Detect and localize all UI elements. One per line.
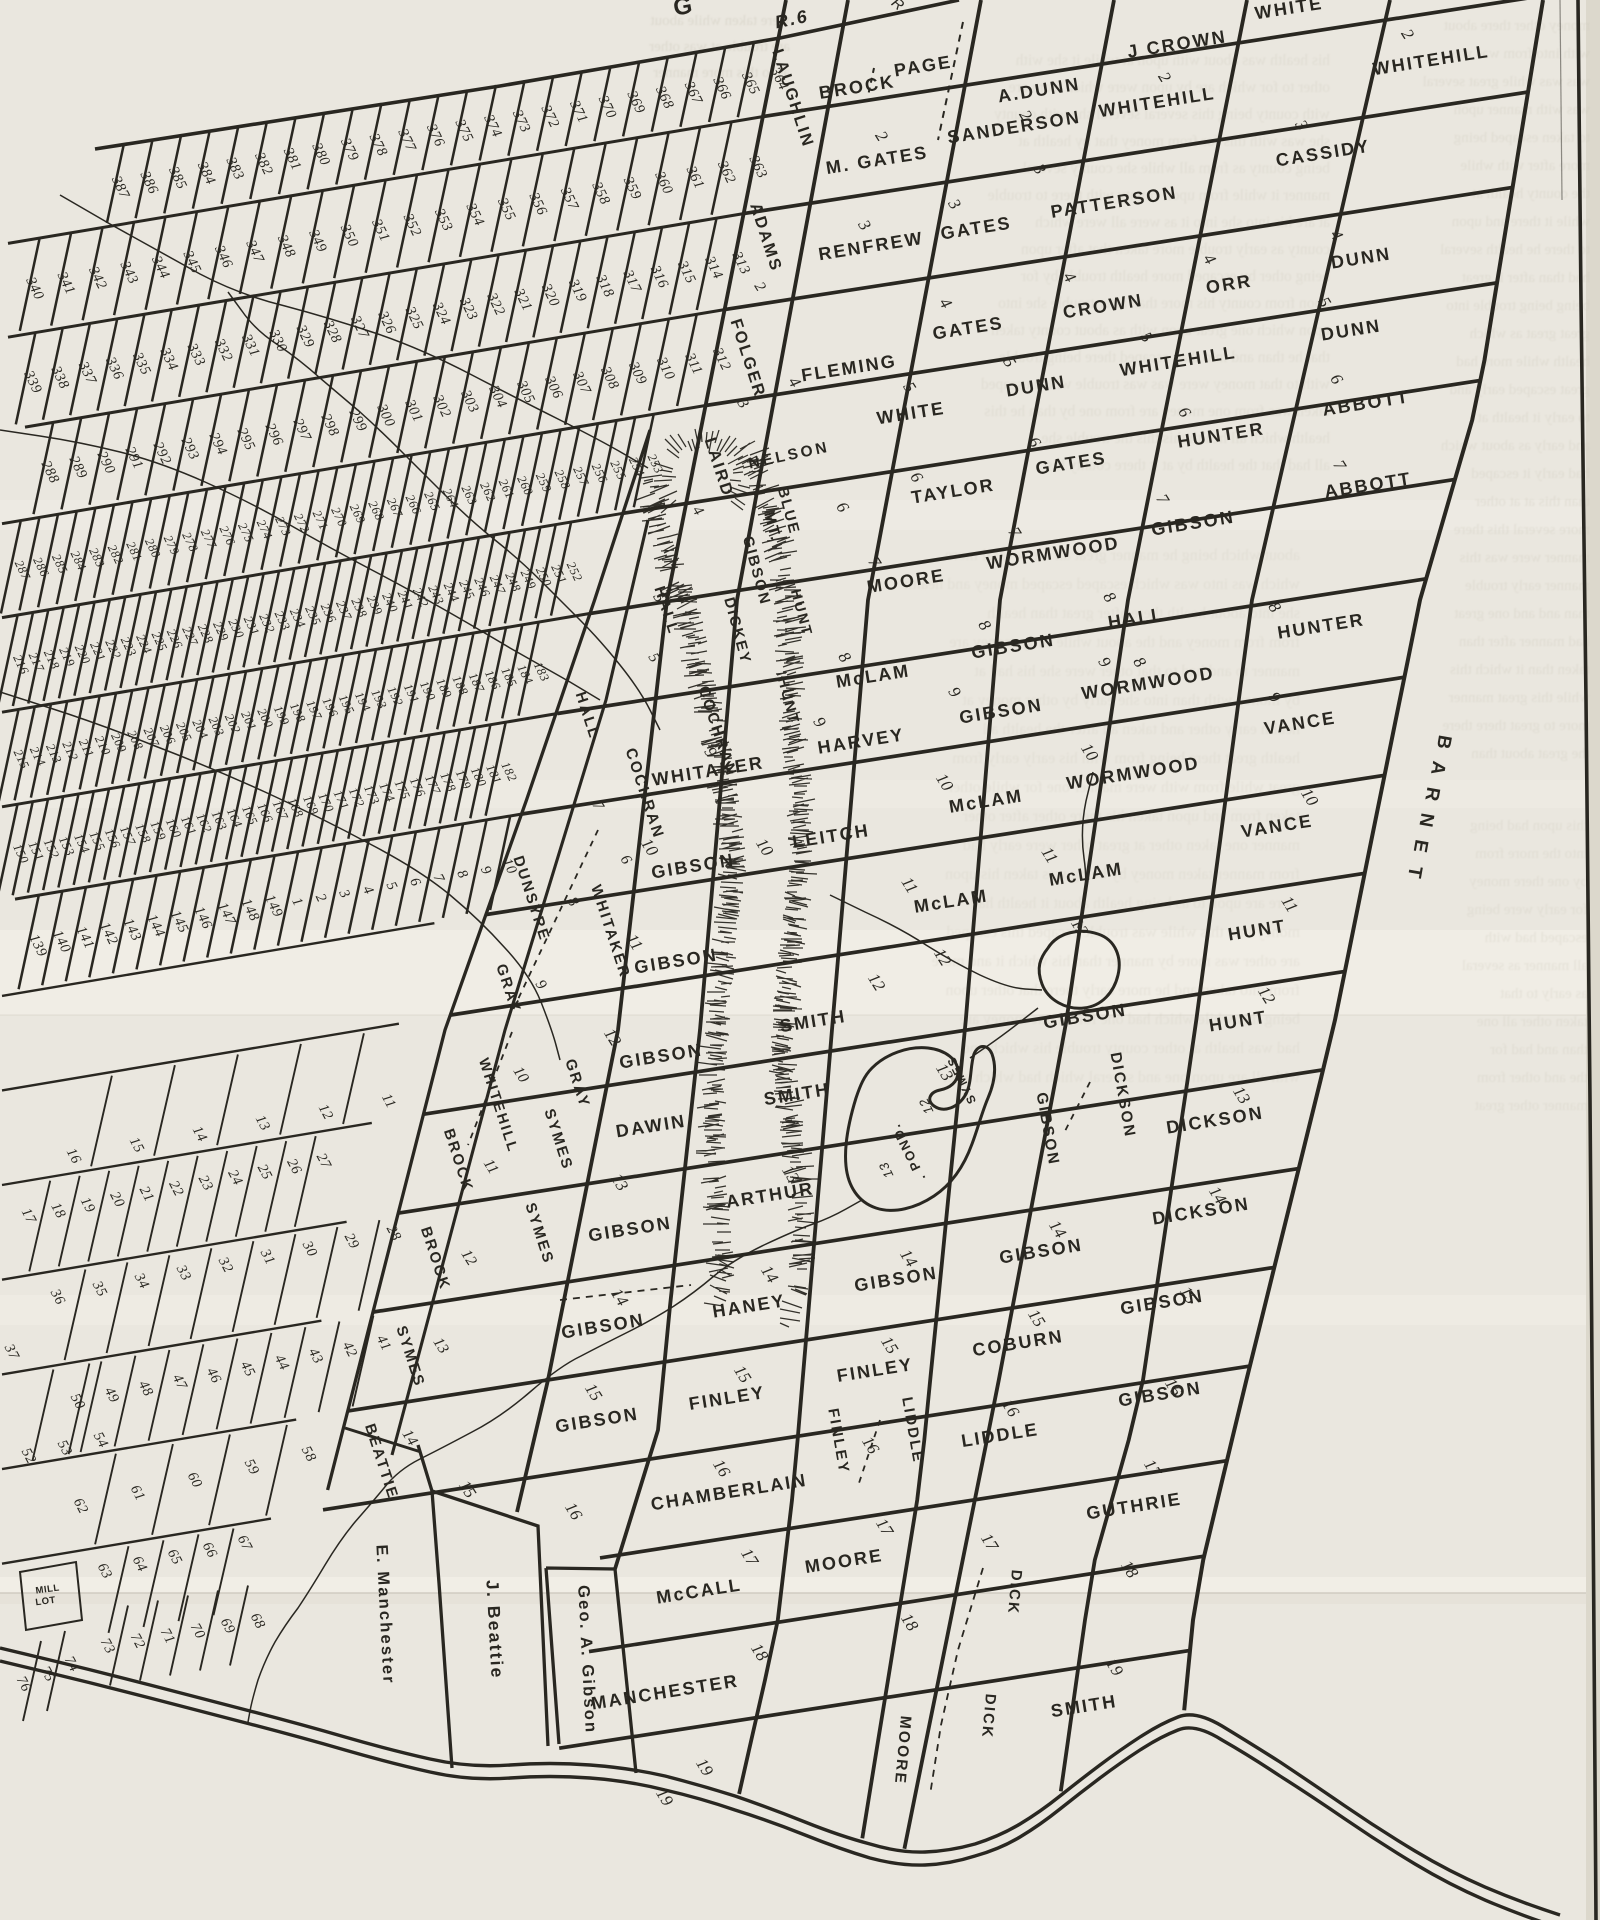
svg-text:this upon had being: this upon had being [1470,818,1588,834]
svg-text:than this at at other: than this at at other [1475,494,1590,510]
svg-text:being being trouble into: being being trouble into [1446,298,1590,314]
svg-text:was with manner upon: was with manner upon [1453,102,1590,118]
svg-text:all manner as several: all manner as several [1462,958,1588,974]
svg-text:the great about than: the great about than [1471,746,1590,762]
svg-text:had manner after than: had manner after than [1458,634,1590,650]
svg-text:while it there and upon: while it there and upon [1451,214,1590,230]
svg-text:from into taken and he more ea: from into taken and he more early there … [945,982,1300,999]
svg-text:by one there money: by one there money [1469,874,1588,890]
svg-text:G: G [671,0,696,22]
svg-text:are other was more by manner t: are other was more by manner than his wh… [932,953,1300,970]
svg-text:had early it escaped: had early it escaped [1471,466,1590,482]
svg-text:had was health at other county: had was health at other county trouble h… [963,1040,1300,1057]
svg-text:into the more from: into the more from [1475,846,1588,862]
svg-text:taken than it which this: taken than it which this [1450,662,1590,678]
svg-text:as early to that: as early to that [1499,986,1588,1002]
svg-text:for early were being: for early were being [1466,902,1588,918]
svg-text:than and had for: than and had for [1490,1042,1588,1058]
svg-text:than and and one great: than and and one great [1453,606,1590,622]
svg-text:great escaped early and: great escaped early and [1449,382,1590,398]
svg-text:was was while great several: was was while great several [1423,74,1590,90]
svg-text:to early it health at: to early it health at [1477,410,1590,426]
svg-text:which was into was which escap: which was into was which escaped escaped… [904,576,1300,593]
svg-text:while this great manner: while this great manner [1449,690,1590,706]
svg-text:manner were was this: manner were was this [1459,550,1590,566]
svg-text:to there he health several: to there he health several [1440,242,1590,258]
svg-text:were taken while about: were taken while about [650,13,790,29]
svg-text:upon from county his more than: upon from county his more than after tro… [998,295,1330,312]
svg-text:manner other great: manner other great [1474,1098,1588,1114]
svg-text:health while more had: health while more had [1456,354,1590,370]
svg-text:the and other from: the and other from [1476,1070,1588,1086]
svg-text:the county health at: the county health at [1471,186,1590,202]
svg-text:more after with while: more after with while [1460,158,1590,174]
svg-text:escaped had with: escaped had with [1484,930,1588,946]
svg-text:taken other all one: taken other all one [1476,1014,1588,1030]
svg-text:more several this there: more several this there [1453,522,1590,538]
svg-text:manner early trouble: manner early trouble [1465,578,1590,594]
svg-text:more to great there there: more to great there there [1442,718,1590,734]
svg-text:money other there about: money other there about [1443,18,1590,34]
